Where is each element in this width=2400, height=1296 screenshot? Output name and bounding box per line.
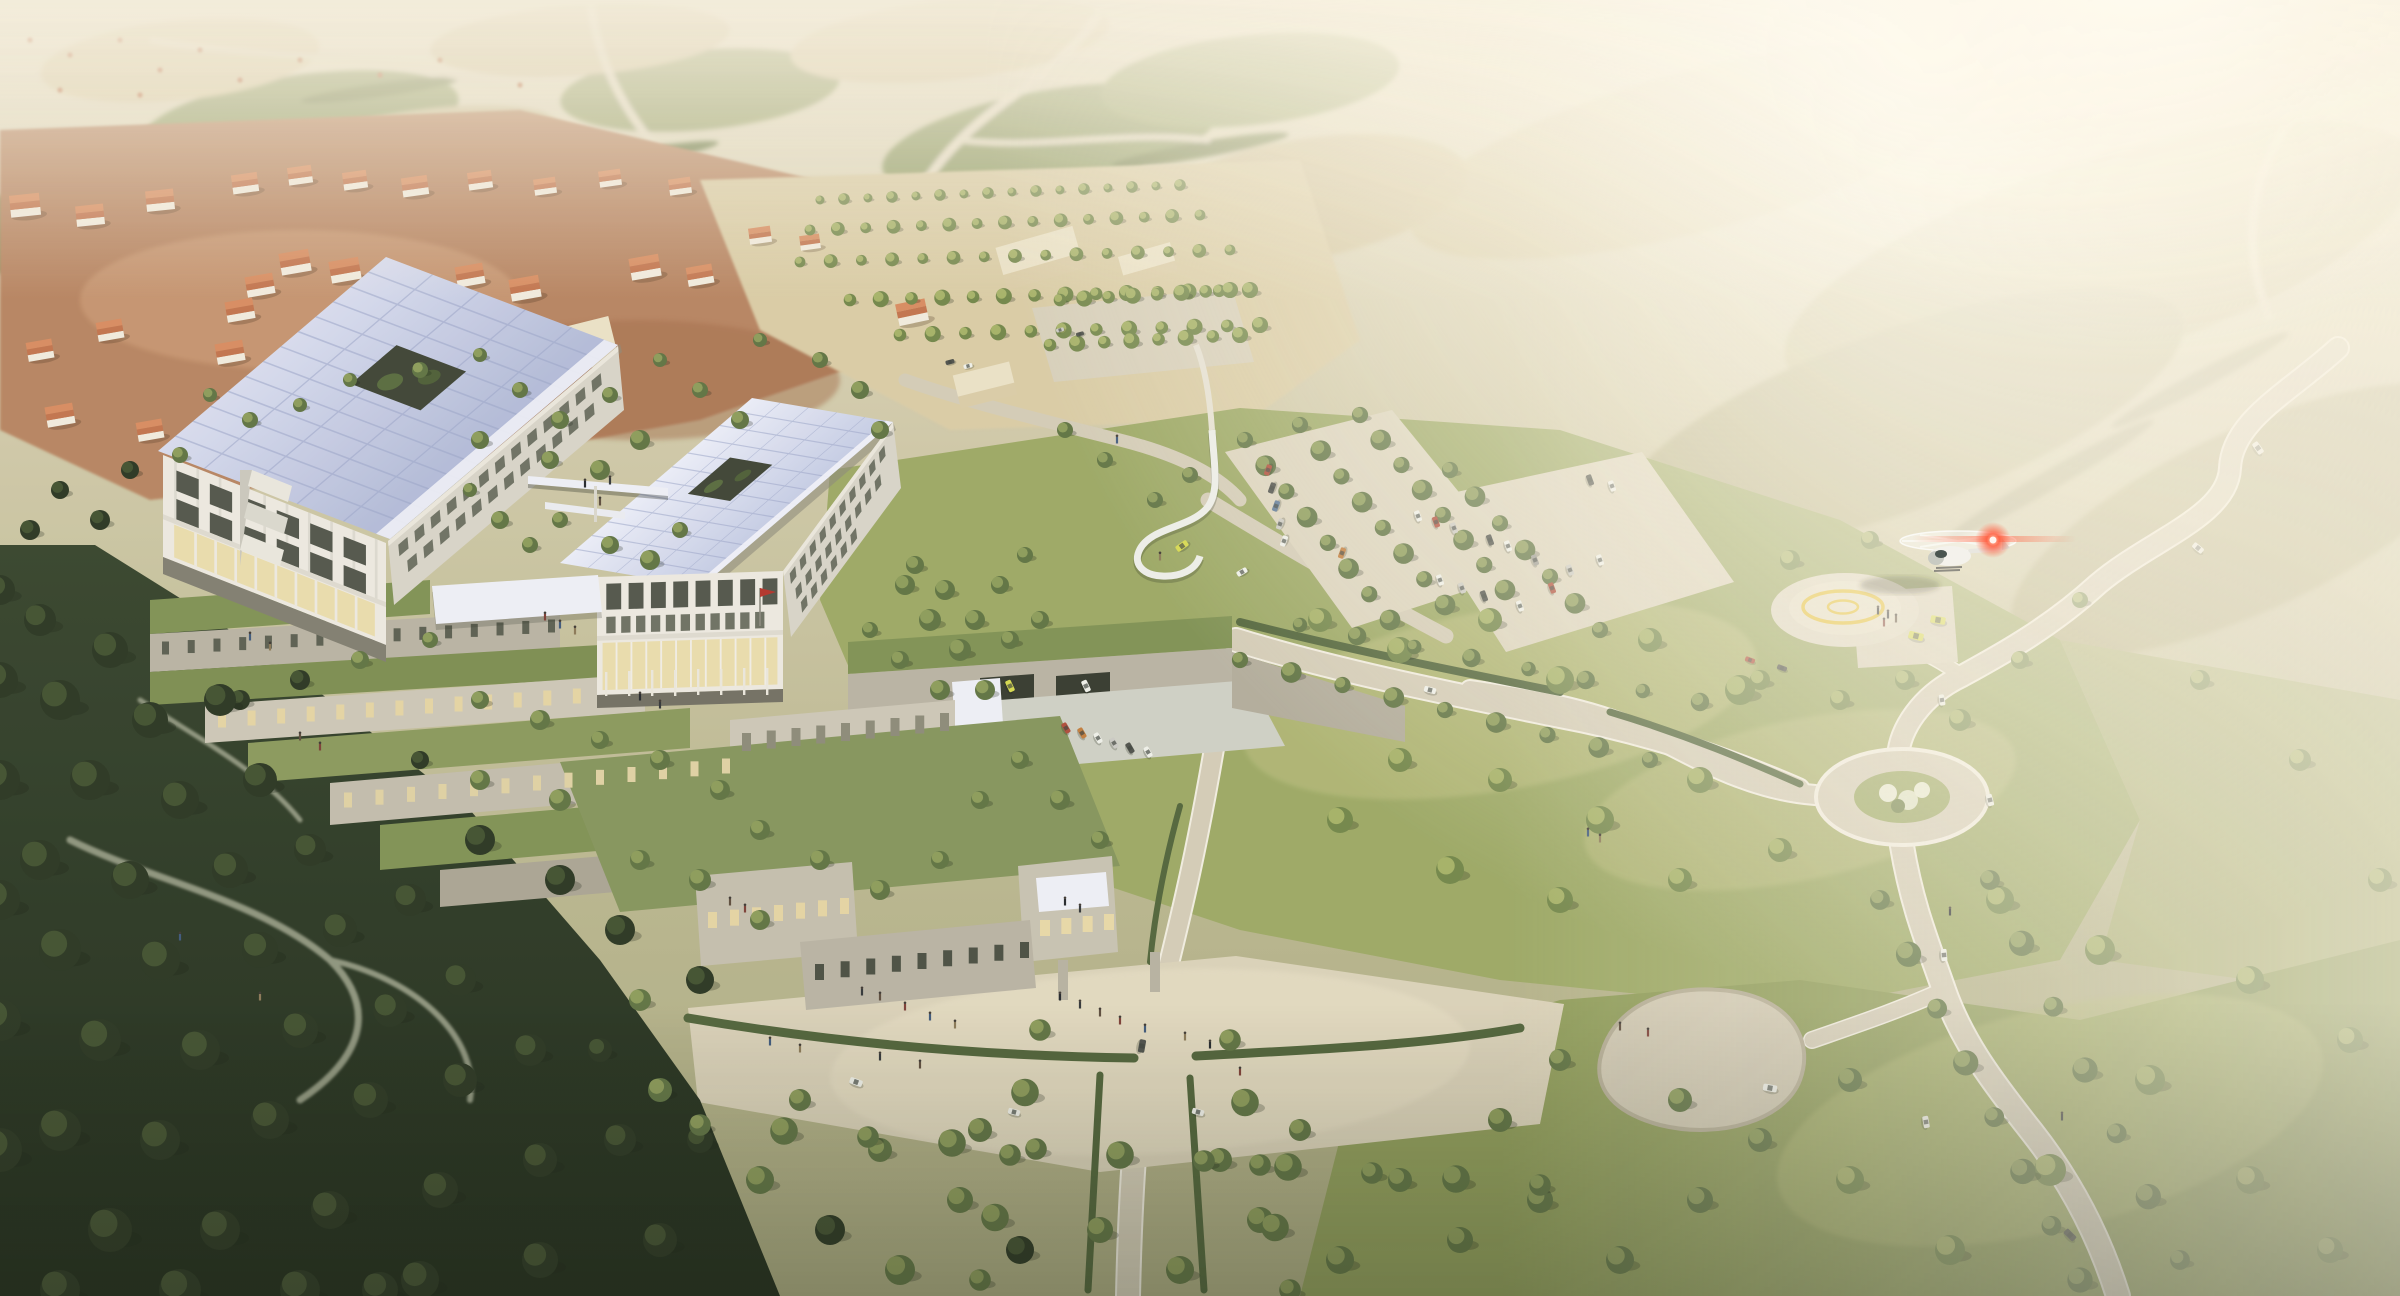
skid [1936,567,1962,568]
helicopter-shadow [1860,576,1940,594]
lens-flare-core [1990,537,1997,544]
cockpit-glass [1935,550,1947,558]
atmosphere [0,0,2400,1296]
architectural-rendering [0,0,2400,1296]
warm-tint [0,0,2400,1296]
skid [1934,570,1960,571]
hospital-campus-aerial-scene [0,0,2400,1296]
